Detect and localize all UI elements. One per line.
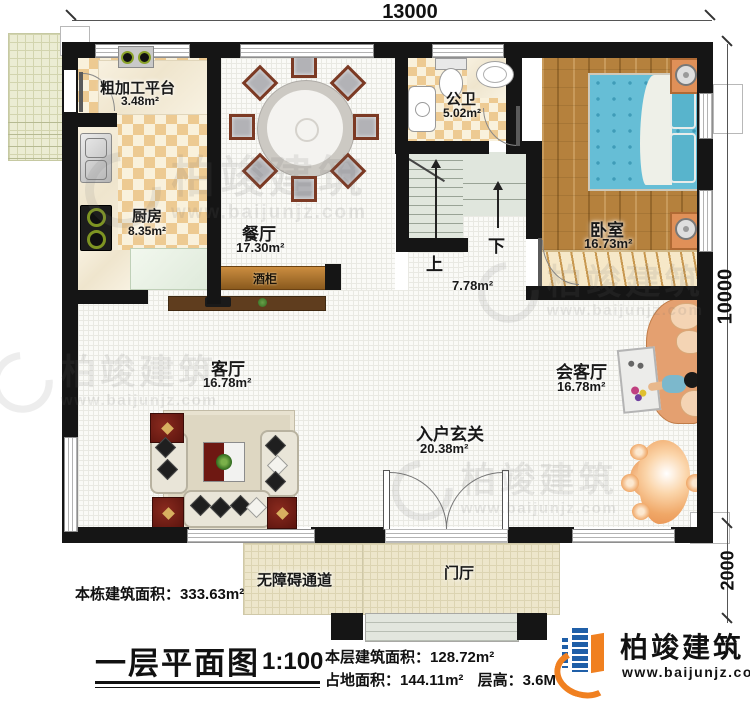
porch-column-right bbox=[517, 613, 547, 640]
wall-kitchen-bottom bbox=[62, 290, 148, 304]
flower-icon bbox=[634, 394, 642, 402]
plan-scale: 1:100 bbox=[262, 648, 323, 676]
dining-chair bbox=[291, 176, 317, 202]
burner-icon bbox=[87, 208, 106, 227]
brand-logo: 柏竣建筑 www.baijunjz.com bbox=[556, 622, 746, 697]
burner-icon bbox=[138, 51, 151, 64]
burner-icon bbox=[87, 230, 106, 249]
window-top-3 bbox=[432, 44, 504, 58]
wall-bottom-4 bbox=[671, 527, 713, 543]
room-area-bedroom: 16.73m² bbox=[584, 236, 632, 251]
kitchen-stove bbox=[80, 205, 112, 251]
wall-stairs-left bbox=[396, 152, 409, 252]
kitchen-island-cabinet bbox=[130, 248, 209, 290]
bath-door-leaf bbox=[516, 106, 520, 146]
building-total-value: 333.63m² bbox=[180, 586, 244, 603]
sink-basin bbox=[85, 138, 107, 158]
stair-landing-line bbox=[463, 199, 526, 200]
bed-pillow bbox=[670, 133, 696, 183]
bedroom-door-leaf bbox=[538, 238, 542, 286]
wall-bedroom-bottom bbox=[526, 286, 713, 300]
star-icon bbox=[161, 422, 174, 435]
ramp-label: 无障碍通道 bbox=[257, 569, 332, 590]
room-area-reception: 16.78m² bbox=[557, 379, 605, 394]
floor-plan: 粗加工平台 3.48m² 厨房 8.35m² 餐厅 17.30m² 公卫 5.0… bbox=[0, 0, 750, 701]
pier-right bbox=[713, 84, 743, 134]
footprint-label: 占地面积： bbox=[325, 672, 400, 689]
room-area-rough: 3.48m² bbox=[121, 94, 159, 108]
lamp-icon bbox=[675, 64, 697, 86]
wall-bar-endcap bbox=[325, 264, 341, 290]
window-top-2 bbox=[240, 44, 374, 58]
shower-drain-icon bbox=[415, 102, 430, 117]
title-underline bbox=[95, 681, 320, 684]
window-bottom-living bbox=[187, 529, 315, 543]
wall-bottom-2 bbox=[311, 527, 385, 543]
window-right-2 bbox=[699, 190, 713, 252]
bed-sheet bbox=[640, 75, 672, 185]
star-icon bbox=[162, 507, 175, 520]
lamp-icon bbox=[675, 218, 697, 240]
page-title: 一层平面图 bbox=[95, 638, 260, 683]
building-total-label: 本栋建筑面积： bbox=[75, 586, 180, 603]
floor-area-value: 128.72m² bbox=[430, 649, 494, 666]
wall-dining-bath bbox=[395, 42, 408, 154]
window-left-living bbox=[64, 437, 78, 532]
room-label-kitchen: 厨房 bbox=[132, 205, 162, 226]
dining-chair bbox=[229, 114, 255, 140]
wall-bottom-3 bbox=[506, 527, 574, 543]
room-area-foyer: 20.38m² bbox=[420, 441, 468, 456]
sink-bowl bbox=[483, 66, 507, 83]
logo-swoosh bbox=[549, 643, 619, 701]
wall-bedroom-left bbox=[526, 141, 542, 239]
star-icon bbox=[276, 507, 289, 520]
window-right-1 bbox=[699, 93, 713, 139]
door-opening-patio bbox=[64, 70, 76, 112]
stair-down-arrowhead bbox=[493, 181, 503, 190]
rug-dot bbox=[630, 444, 648, 460]
wall-bath-bottom bbox=[395, 141, 489, 154]
dim-top-label: 13000 bbox=[340, 1, 480, 24]
entry-door-right-leaf bbox=[502, 470, 509, 530]
rug-dot bbox=[632, 503, 650, 520]
kitchen-sink bbox=[80, 133, 112, 183]
footprint-line: 占地面积：144.11m² 层高：3.6M bbox=[325, 669, 556, 690]
stair-up-arrow bbox=[435, 168, 437, 246]
wall-rough-kitchen bbox=[62, 113, 117, 127]
height-value: 3.6M bbox=[523, 672, 556, 689]
porch-column-left bbox=[331, 613, 363, 640]
wall-bottom-1 bbox=[62, 527, 189, 543]
plant-icon bbox=[216, 454, 232, 470]
stair-up-label: 上 bbox=[426, 250, 443, 275]
porch-label: 门厅 bbox=[444, 562, 474, 583]
dining-chair bbox=[353, 114, 379, 140]
sink-basin bbox=[85, 160, 107, 180]
side-table bbox=[267, 497, 297, 529]
room-area-kitchen: 8.35m² bbox=[128, 224, 166, 238]
wall-kitchen-dining bbox=[207, 42, 221, 304]
height-label: 层高： bbox=[478, 672, 523, 689]
stair-down-arrow bbox=[497, 190, 499, 228]
wine-cabinet-label: 酒柜 bbox=[253, 270, 277, 287]
porch-steps bbox=[365, 613, 519, 642]
title-underline-2 bbox=[95, 687, 320, 688]
brand-url: www.baijunjz.com bbox=[622, 664, 750, 680]
burner-icon bbox=[121, 51, 134, 64]
building-total-area: 本栋建筑面积：333.63m² bbox=[75, 583, 244, 604]
side-table bbox=[152, 497, 184, 529]
dim-right-upper-label: 10000 bbox=[715, 265, 738, 329]
kitchen-counter-bottom bbox=[78, 250, 133, 290]
coffee-table bbox=[203, 442, 245, 482]
dim-right-lower-label: 2000 bbox=[718, 543, 739, 599]
reception-table bbox=[617, 346, 661, 414]
cooktop-top bbox=[118, 46, 154, 68]
stair-down-label: 下 bbox=[488, 232, 505, 257]
remote-icon bbox=[637, 362, 644, 369]
plant-icon bbox=[258, 298, 267, 307]
dining-table-center bbox=[295, 118, 319, 142]
brand-glyph-icon bbox=[0, 340, 65, 426]
room-area-bath: 5.02m² bbox=[443, 106, 481, 120]
logo-building-icon bbox=[556, 626, 614, 690]
stair-area-label: 7.78m² bbox=[452, 278, 493, 293]
floor-area-line: 本层建筑面积：128.72m² bbox=[325, 646, 494, 667]
window-bottom-reception bbox=[572, 529, 675, 543]
patio-door-leaf bbox=[79, 72, 83, 112]
footprint-value: 144.11m² bbox=[400, 672, 463, 689]
dim-tick bbox=[65, 9, 76, 20]
dim-tick bbox=[704, 9, 715, 20]
shower bbox=[408, 86, 436, 132]
rug-dot bbox=[621, 474, 639, 492]
console-table bbox=[168, 296, 326, 311]
stair-up-arrowhead bbox=[431, 159, 441, 168]
room-area-living: 16.78m² bbox=[203, 375, 251, 390]
bath-sink bbox=[476, 61, 514, 88]
room-area-dining: 17.30m² bbox=[236, 240, 284, 255]
entry-threshold bbox=[385, 529, 508, 543]
brand-name: 柏竣建筑 bbox=[620, 626, 744, 666]
person-shirt bbox=[662, 375, 686, 393]
side-patio-steps bbox=[8, 111, 62, 159]
floor-area-label: 本层建筑面积： bbox=[325, 649, 430, 666]
remote-icon bbox=[628, 360, 635, 367]
entry-door-left-leaf bbox=[383, 470, 390, 530]
